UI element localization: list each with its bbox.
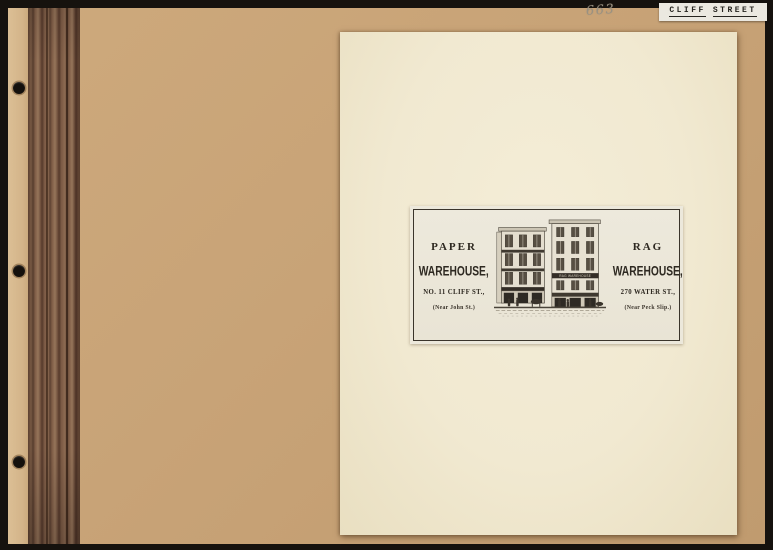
rag-warehouse-building: RAG WAREHOUSE [549, 220, 600, 307]
binding-seam-right [66, 8, 68, 544]
cliff-street-label-word-2: STREET [713, 7, 757, 17]
punch-hole-top [13, 82, 25, 94]
paper-warehouse-building [497, 227, 546, 303]
rag-cross-street: (Near Peck Slip.) [624, 305, 671, 311]
cliff-street-label-word-1: CLIFF [669, 7, 706, 17]
scrapbook-scan-photo: PAPER WAREHOUSE, NO. 11 CLIFF ST., (Near… [0, 0, 773, 550]
rag-warehouse-text-block: RAG WAREHOUSE, 270 WATER ST., (Near Peck… [606, 210, 690, 340]
advert-plate: PAPER WAREHOUSE, NO. 11 CLIFF ST., (Near… [410, 206, 683, 344]
paper-subtitle: WAREHOUSE, [419, 263, 489, 278]
cliff-street-label: CLIFF STREET [659, 3, 767, 21]
advert-border-frame: PAPER WAREHOUSE, NO. 11 CLIFF ST., (Near… [413, 209, 680, 341]
rag-subtitle: WAREHOUSE, [613, 263, 683, 278]
punch-hole-middle [13, 265, 25, 277]
album-binding-cloth [28, 8, 80, 544]
rag-warehouse-sign-text: RAG WAREHOUSE [559, 274, 591, 278]
paper-title: PAPER [431, 241, 477, 253]
paper-warehouse-text-block: PAPER WAREHOUSE, NO. 11 CLIFF ST., (Near… [414, 210, 494, 340]
punch-hole-bottom [13, 456, 25, 468]
paper-address: NO. 11 CLIFF ST., [423, 289, 485, 296]
storefront-engraving-area: RAG WAREHOUSE [494, 210, 606, 340]
storefront-engraving: RAG WAREHOUSE [494, 214, 606, 336]
rag-title: RAG [633, 241, 663, 253]
handwritten-page-number: 663 [586, 2, 616, 19]
binding-seam-left [46, 8, 48, 544]
rag-address: 270 WATER ST., [621, 289, 676, 296]
paper-cross-street: (Near John St.) [433, 305, 475, 311]
